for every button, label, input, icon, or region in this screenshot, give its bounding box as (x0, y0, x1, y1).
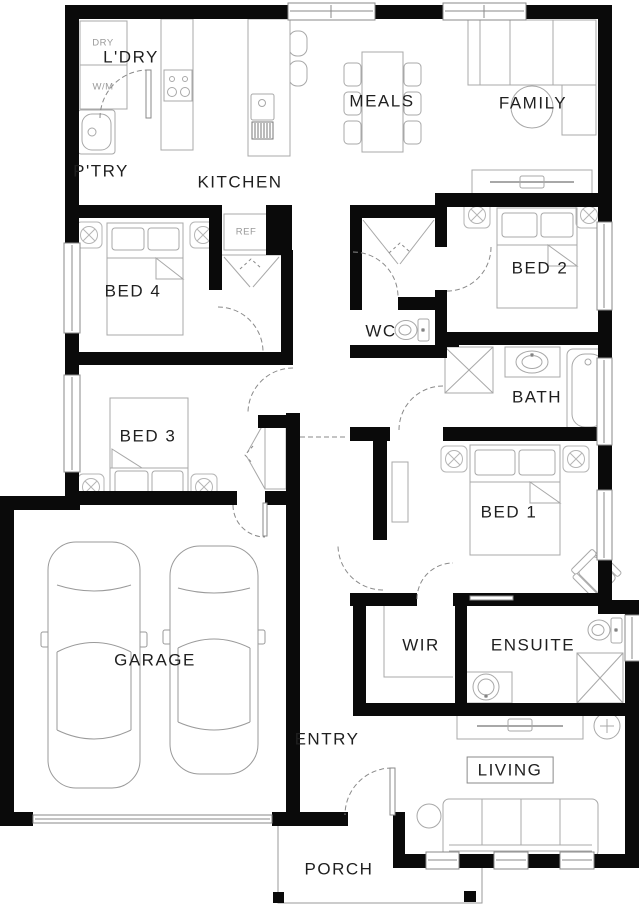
floor-plan: L'DRY P'TRY KITCHEN MEALS FAMILY BED 4 B… (0, 0, 639, 911)
living-side-table (594, 713, 620, 739)
room-label-bed4: BED 4 (105, 283, 162, 300)
room-label-kitchen: KITCHEN (197, 174, 282, 191)
porch-post (464, 891, 476, 902)
bed3-door-arc (248, 368, 293, 413)
family-sofa (468, 20, 596, 135)
room-label-bed3: BED 3 (120, 428, 177, 445)
garage-entry-door-arc (233, 505, 265, 537)
washer-label: W/M (92, 82, 113, 92)
bed3-bed (106, 398, 192, 504)
wir-door-arc (417, 563, 453, 599)
room-label-living: LIVING (467, 757, 554, 784)
bath-shower (445, 347, 493, 393)
room-label-meals: MEALS (349, 93, 414, 110)
bath-vanity (505, 347, 560, 377)
room-label-laundry: L'DRY (103, 49, 159, 66)
hall-linen-bifold (363, 220, 434, 264)
bed4-door-arc (218, 307, 263, 352)
bed4-bed (107, 223, 183, 335)
bed2-door-arc (447, 247, 491, 291)
bed1-armchair (568, 546, 622, 600)
family-tv-unit (472, 170, 592, 194)
kitchen-island (248, 19, 307, 156)
bed1-door-arc (338, 545, 383, 590)
bed1-dresser (392, 462, 408, 522)
ensuite-toilet (588, 618, 622, 643)
kitchen-bench (161, 19, 193, 150)
porch-post (273, 892, 284, 903)
ensuite-shower (577, 653, 623, 703)
bed4-closet-bifold (222, 255, 281, 287)
front-door-arc (345, 768, 392, 815)
room-label-wc: WC (365, 323, 396, 340)
room-label-bath: BATH (512, 389, 562, 406)
fridge-label: REF (236, 227, 257, 237)
room-label-family: FAMILY (499, 95, 567, 112)
living-tv-unit (457, 712, 583, 739)
room-label-garage: GARAGE (114, 652, 196, 669)
bed1-bed (470, 445, 560, 555)
bath-door-arc (399, 386, 443, 430)
ensuite-vanity (462, 672, 512, 703)
room-label-pantry: P'TRY (73, 163, 129, 180)
dryer-label: DRY (92, 38, 113, 48)
room-label-wir: WIR (402, 637, 440, 654)
room-label-entry: ENTRY (295, 731, 360, 748)
room-label-ensuite: ENSUITE (491, 637, 575, 654)
wc-toilet (395, 319, 429, 341)
living-sofa (443, 799, 598, 857)
room-label-porch: PORCH (305, 861, 374, 878)
room-label-bed1: BED 1 (481, 504, 538, 521)
bed3-robe (245, 419, 286, 489)
garage-door (33, 815, 272, 823)
room-label-bed2: BED 2 (512, 260, 569, 277)
living-round-table (417, 804, 441, 828)
